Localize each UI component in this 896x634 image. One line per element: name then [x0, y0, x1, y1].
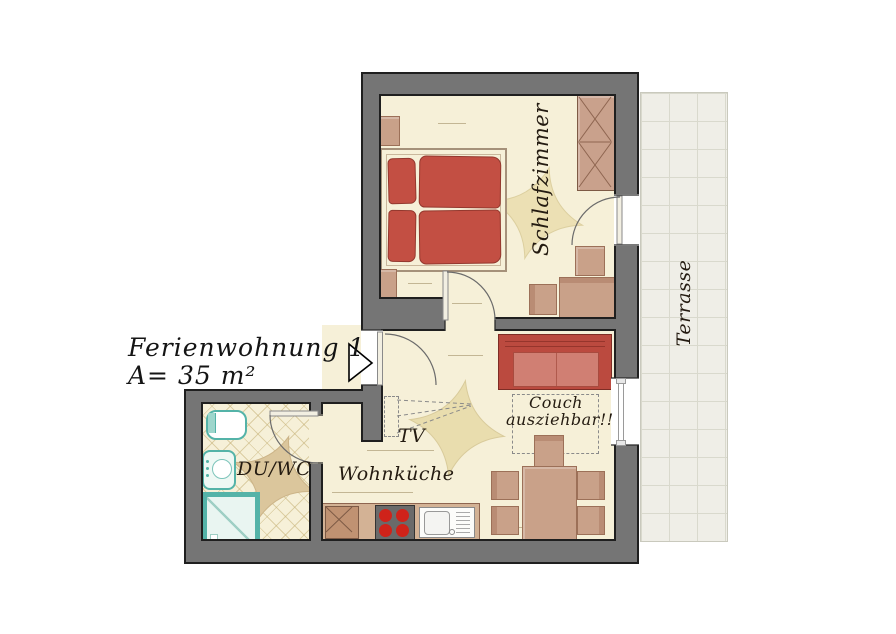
terrace-label: Terrasse — [672, 248, 696, 358]
plan-title-line1: Ferienwohnung 1 — [128, 334, 365, 362]
plan-title-line2: A= 35 m² — [128, 362, 365, 390]
terrace-door-leaf — [617, 196, 622, 244]
bedroom-label: Schlafzimmer — [529, 116, 553, 256]
wall-layer — [0, 0, 896, 634]
couch-note-line2: ausziehbar!! — [506, 410, 606, 429]
walls — [185, 73, 638, 563]
entrance-door-leaf — [378, 332, 383, 385]
bath-label: DU/WC — [237, 458, 311, 480]
wardrobe-x-pattern — [578, 97, 612, 187]
cabinet-x-pattern — [326, 507, 352, 532]
plan-title: Ferienwohnung 1 A= 35 m² — [128, 334, 365, 390]
bath-door-opening — [309, 414, 323, 464]
entrance-door-arc — [385, 334, 436, 385]
living-kitchen-label: Wohnküche — [338, 463, 455, 485]
bedroom-door-opening — [445, 317, 495, 331]
bath-door-leaf — [270, 411, 318, 416]
bedroom-door-leaf — [443, 271, 448, 320]
tv-label: TV — [398, 425, 425, 447]
window-opening — [611, 378, 639, 445]
bedroom-door-arc — [447, 272, 495, 320]
floor-plan: Ferienwohnung 1 A= 35 m² Schlafzimmer Te… — [0, 0, 896, 634]
terrace-door-arc — [572, 197, 620, 245]
